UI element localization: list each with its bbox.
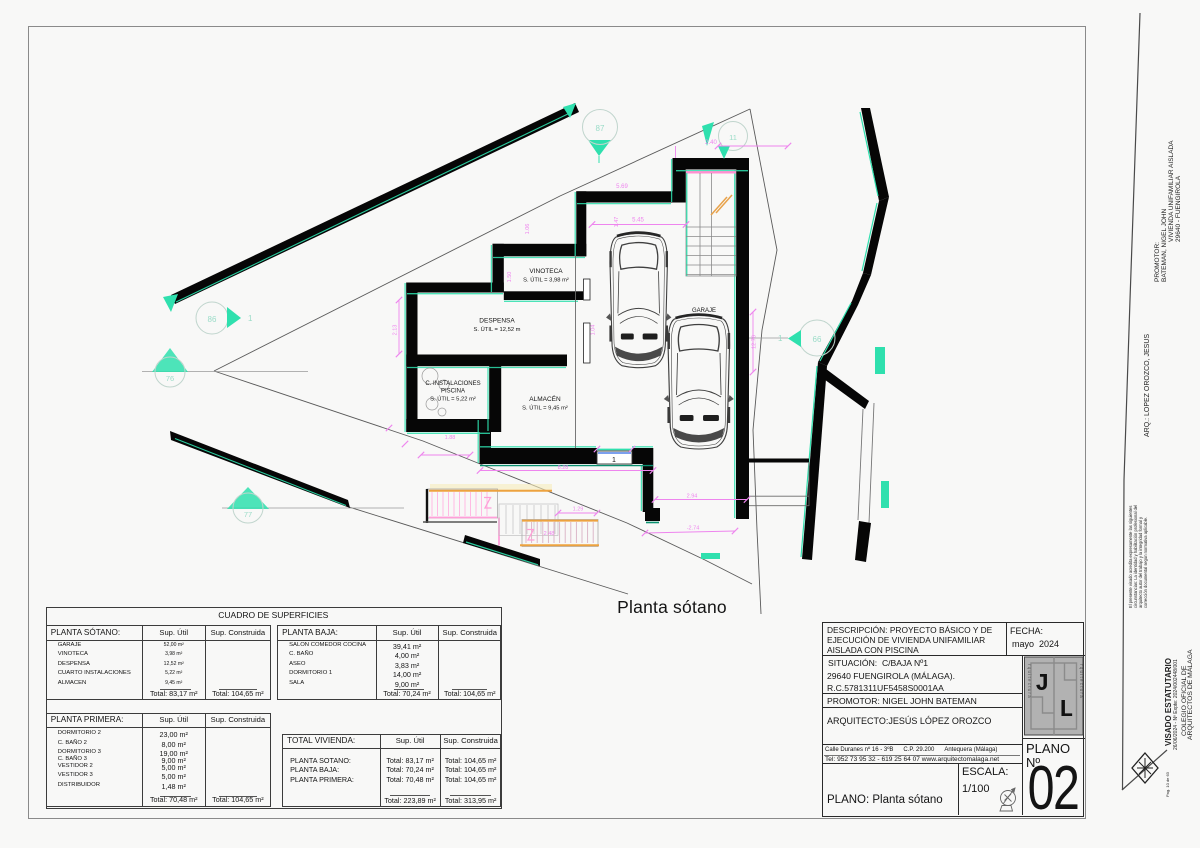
svg-text:ARQ.: LOPEZ OROZCO, JESUS: ARQ.: LOPEZ OROZCO, JESUS [1144,334,1151,437]
svg-text:1.06: 1.06 [525,224,531,235]
svg-text:GARAJE: GARAJE [692,308,716,314]
svg-text:rquitectura: rquitectura [1027,664,1032,699]
svg-text:VINOTECA: VINOTECA [529,268,563,275]
svg-text:S. ÚTIL = 9,45 m²: S. ÚTIL = 9,45 m² [522,405,568,412]
svg-text:66: 66 [813,335,822,344]
svg-text:S. ÚTIL = 5,22 m²: S. ÚTIL = 5,22 m² [430,396,476,403]
svg-text:1.47: 1.47 [614,217,620,228]
svg-text:ALMACÉN: ALMACÉN [529,394,561,403]
svg-text:Pag. 10 de 63: Pag. 10 de 63 [1165,771,1170,797]
svg-text:1: 1 [612,457,616,464]
svg-text:S. ÚTIL = 3,98 m²: S. ÚTIL = 3,98 m² [523,277,569,284]
svg-text:1: 1 [778,334,783,343]
svg-text:29640 - FUENGIROLA: 29640 - FUENGIROLA [1175,175,1182,242]
svg-text:8.28: 8.28 [558,465,569,471]
svg-text:1.88: 1.88 [445,435,456,441]
svg-text:VISADO ESTATUTARIO: VISADO ESTATUTARIO [1164,658,1173,746]
svg-text:1: 1 [248,314,253,323]
svg-text:PISCINA: PISCINA [441,389,465,395]
svg-text:J: J [1035,671,1049,698]
svg-text:L: L [1059,697,1073,724]
svg-text:corrección documental según no: corrección documental según normativa ap… [1143,517,1148,608]
svg-text:26/06/2024 - Nº Expte: 2024/00: 26/06/2024 - Nº Expte: 2024/002448/001 [1173,659,1179,750]
svg-text:2.40: 2.40 [705,140,717,146]
svg-text:S. ÚTIL = 12,52 m: S. ÚTIL = 12,52 m [474,326,521,333]
svg-text:86: 86 [208,315,217,324]
svg-text:BATEMAN, NIGEL JOHN: BATEMAN, NIGEL JOHN [1161,208,1168,282]
svg-text:1.29: 1.29 [573,507,584,513]
svg-text:DESPENSA: DESPENSA [479,318,515,325]
svg-text:ARQUITECTOS DE MÁLAGA: ARQUITECTOS DE MÁLAGA [1185,649,1194,740]
svg-text:2.13: 2.13 [393,325,399,336]
svg-text:-2.74: -2.74 [687,526,700,532]
svg-text:2.48: 2.48 [544,531,555,537]
svg-text:76: 76 [166,374,174,383]
svg-text:1.04: 1.04 [591,325,597,336]
svg-text:5.45: 5.45 [632,218,644,224]
svg-text:12.76: 12.76 [752,335,758,349]
svg-text:77: 77 [244,510,252,519]
svg-text:87: 87 [596,124,605,133]
svg-text:1.50: 1.50 [507,272,513,283]
svg-text:C. INSTALACIONES: C. INSTALACIONES [425,381,480,387]
svg-text:VIVIENDA UNIFAMILIAR AISLADA: VIVIENDA UNIFAMILIAR AISLADA [1168,140,1175,242]
svg-text:5.69: 5.69 [616,184,628,190]
svg-text:rquitectura: rquitectura [1079,664,1084,699]
svg-text:11: 11 [729,133,737,142]
svg-text:PROMOTOR:: PROMOTOR: [1154,242,1161,282]
svg-text:2.94: 2.94 [687,494,698,500]
